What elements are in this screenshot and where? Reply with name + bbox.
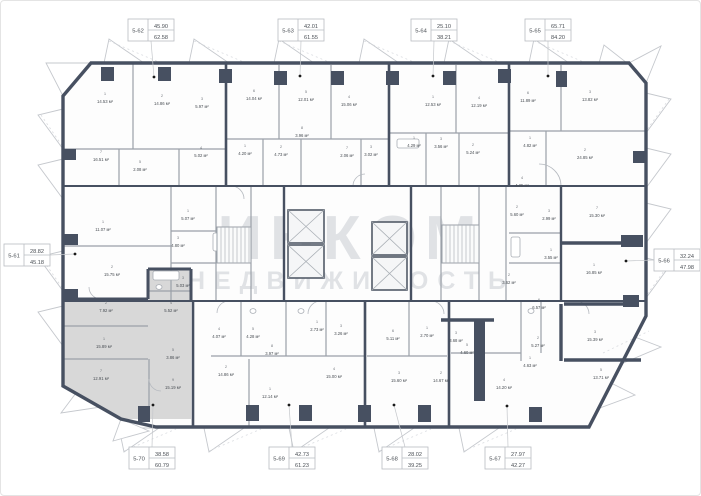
apartment-tag-5-68[interactable]: 5-6828.0239.25 [382, 447, 428, 469]
svg-text:84.20: 84.20 [551, 35, 565, 41]
svg-text:1: 1 [316, 320, 318, 324]
svg-text:3.02 м²: 3.02 м² [364, 152, 378, 157]
svg-text:2: 2 [472, 143, 474, 147]
svg-text:2: 2 [280, 145, 282, 149]
svg-text:3: 3 [548, 209, 550, 213]
apartment-tag-5-70[interactable]: 5-7038.5860.79 [129, 447, 175, 469]
svg-text:14.53 м²: 14.53 м² [97, 99, 114, 104]
svg-text:2.08 м²: 2.08 м² [133, 167, 147, 172]
svg-text:7: 7 [346, 146, 348, 150]
svg-text:4: 4 [170, 301, 172, 305]
svg-text:5.11 м²: 5.11 м² [386, 336, 400, 341]
svg-text:5.24 м²: 5.24 м² [466, 150, 480, 155]
svg-text:5-70: 5-70 [133, 457, 145, 463]
svg-text:1: 1 [529, 356, 531, 360]
svg-text:62.58: 62.58 [154, 35, 168, 41]
svg-text:7.92 м²: 7.92 м² [99, 308, 113, 313]
svg-text:5: 5 [252, 327, 254, 331]
svg-text:32.24: 32.24 [680, 254, 694, 260]
svg-text:11.07 м²: 11.07 м² [95, 227, 111, 232]
apartment-tag-5-66[interactable]: 5-6632.2447.98 [654, 249, 700, 271]
svg-text:6: 6 [527, 91, 529, 95]
svg-text:4: 4 [200, 146, 202, 150]
svg-text:12.14 м²: 12.14 м² [262, 394, 279, 399]
svg-text:1: 1 [426, 326, 428, 330]
svg-text:3.86 м²: 3.86 м² [166, 355, 180, 360]
svg-text:2.99 м²: 2.99 м² [542, 216, 556, 221]
svg-text:14.67 м²: 14.67 м² [433, 378, 450, 383]
svg-text:4: 4 [503, 378, 505, 382]
svg-text:42.73: 42.73 [295, 452, 309, 458]
svg-text:3: 3 [340, 324, 342, 328]
svg-text:8: 8 [301, 126, 303, 130]
svg-text:5: 5 [305, 90, 307, 94]
svg-text:4: 4 [478, 96, 480, 100]
svg-text:1: 1 [104, 92, 106, 96]
svg-text:6: 6 [253, 89, 255, 93]
svg-text:61.23: 61.23 [295, 463, 309, 469]
stairwell-left [217, 227, 251, 263]
svg-text:3: 3 [398, 371, 400, 375]
svg-text:3.55 м²: 3.55 м² [544, 255, 558, 260]
svg-text:12.53 м²: 12.53 м² [425, 102, 442, 107]
svg-text:4.28 м²: 4.28 м² [246, 334, 260, 339]
svg-text:13.71 м²: 13.71 м² [593, 375, 610, 380]
svg-text:16.85 м²: 16.85 м² [586, 270, 603, 275]
svg-text:16.51 м²: 16.51 м² [93, 157, 110, 162]
svg-text:5-64: 5-64 [415, 29, 427, 35]
svg-text:1: 1 [102, 220, 104, 224]
svg-text:2: 2 [516, 205, 518, 209]
svg-text:5: 5 [139, 160, 141, 164]
svg-text:3: 3 [594, 330, 596, 334]
svg-text:15.06 м²: 15.06 м² [341, 102, 358, 107]
svg-text:2: 2 [225, 365, 227, 369]
svg-text:13.82 м²: 13.82 м² [582, 97, 599, 102]
svg-text:3: 3 [201, 97, 203, 101]
svg-text:14.86 м²: 14.86 м² [154, 101, 171, 106]
svg-text:4.07 м²: 4.07 м² [212, 334, 226, 339]
svg-text:5: 5 [466, 343, 468, 347]
svg-text:2: 2 [537, 336, 539, 340]
svg-text:42.27: 42.27 [511, 463, 525, 469]
svg-text:4.25 м²: 4.25 м² [515, 183, 529, 188]
svg-text:42.01: 42.01 [304, 24, 318, 30]
svg-text:2: 2 [161, 94, 163, 98]
svg-text:5: 5 [600, 368, 602, 372]
svg-text:4.63 м²: 4.63 м² [523, 363, 537, 368]
svg-text:1: 1 [593, 263, 595, 267]
svg-text:5-68: 5-68 [386, 457, 398, 463]
apartment-tag-5-62[interactable]: 5-6245.9062.58 [128, 19, 174, 41]
svg-text:5-65: 5-65 [529, 29, 541, 35]
svg-text:5.07 м²: 5.07 м² [181, 216, 195, 221]
svg-text:5.03 м²: 5.03 м² [176, 283, 190, 288]
svg-text:27.97: 27.97 [511, 452, 525, 458]
svg-text:6.57 м²: 6.57 м² [532, 305, 546, 310]
svg-text:38.58: 38.58 [155, 452, 169, 458]
svg-text:45.90: 45.90 [154, 24, 168, 30]
svg-text:65.71: 65.71 [551, 24, 565, 30]
svg-text:4.29 м²: 4.29 м² [407, 143, 421, 148]
svg-text:3.62 м²: 3.62 м² [502, 280, 516, 285]
svg-text:7: 7 [100, 369, 102, 373]
svg-text:1: 1 [432, 95, 434, 99]
svg-text:6: 6 [392, 329, 394, 333]
svg-text:1: 1 [244, 144, 246, 148]
svg-text:5-67: 5-67 [489, 457, 501, 463]
svg-text:14.04 м²: 14.04 м² [246, 96, 263, 101]
svg-text:15.00 м²: 15.00 м² [326, 374, 343, 379]
svg-text:3: 3 [182, 276, 184, 280]
svg-text:4: 4 [348, 95, 350, 99]
svg-text:12.01 м²: 12.01 м² [298, 97, 315, 102]
svg-text:15.60 м²: 15.60 м² [391, 378, 408, 383]
svg-text:4: 4 [218, 327, 220, 331]
svg-text:2: 2 [111, 265, 113, 269]
svg-text:38.21: 38.21 [437, 35, 451, 41]
svg-text:15.30 м²: 15.30 м² [589, 213, 606, 218]
svg-text:3: 3 [589, 90, 591, 94]
svg-text:5.27 м²: 5.27 м² [531, 343, 545, 348]
svg-text:3.56 м²: 3.56 м² [434, 144, 448, 149]
svg-text:9: 9 [172, 378, 174, 382]
svg-text:3.97 м²: 3.97 м² [265, 351, 279, 356]
svg-text:4.60 м²: 4.60 м² [460, 350, 474, 355]
svg-text:5-62: 5-62 [132, 29, 144, 35]
svg-text:5-66: 5-66 [658, 259, 670, 265]
svg-text:60.79: 60.79 [155, 463, 169, 469]
svg-text:1: 1 [103, 337, 105, 341]
svg-text:28.02: 28.02 [408, 452, 422, 458]
svg-text:5: 5 [172, 348, 174, 352]
svg-text:24.85 м²: 24.85 м² [577, 155, 594, 160]
floorplan-viewport: ИНКОМ НЕДВИЖИМОСТЬ [0, 0, 701, 496]
svg-text:3.68 м²: 3.68 м² [449, 338, 463, 343]
svg-text:5.02 м²: 5.02 м² [194, 153, 208, 158]
svg-text:2: 2 [440, 371, 442, 375]
svg-text:15.19 м²: 15.19 м² [165, 385, 182, 390]
svg-text:2: 2 [508, 273, 510, 277]
svg-text:4.73 м²: 4.73 м² [274, 152, 288, 157]
svg-text:6: 6 [538, 298, 540, 302]
svg-text:3: 3 [440, 137, 442, 141]
svg-text:2.06 м²: 2.06 м² [340, 153, 354, 158]
svg-text:1: 1 [413, 136, 415, 140]
svg-text:61.55: 61.55 [304, 35, 318, 41]
svg-text:3.96 м²: 3.96 м² [295, 133, 309, 138]
svg-text:11.89 м²: 11.89 м² [520, 98, 536, 103]
svg-text:4: 4 [333, 367, 335, 371]
svg-text:8: 8 [271, 344, 273, 348]
svg-text:5-69: 5-69 [273, 457, 285, 463]
svg-text:2: 2 [584, 148, 586, 152]
svg-text:3: 3 [455, 331, 457, 335]
svg-text:1: 1 [550, 248, 552, 252]
svg-text:12.91 м²: 12.91 м² [93, 376, 110, 381]
svg-text:2.73 м²: 2.73 м² [310, 327, 324, 332]
svg-text:2.70 м²: 2.70 м² [420, 333, 434, 338]
svg-text:12.19 м²: 12.19 м² [471, 103, 488, 108]
apartment-tag-5-67[interactable]: 5-6727.9742.27 [485, 447, 531, 469]
apartment-tag-5-63[interactable]: 5-6342.0161.55 [278, 19, 324, 41]
apartment-tag-5-64[interactable]: 5-6425.1038.21 [411, 19, 457, 41]
svg-text:45.18: 45.18 [30, 260, 44, 266]
watermark-subtitle: НЕДВИЖИМОСТЬ [187, 267, 515, 295]
svg-text:4: 4 [521, 176, 523, 180]
svg-text:7: 7 [596, 206, 598, 210]
svg-text:5-63: 5-63 [282, 29, 294, 35]
svg-text:5.60 м²: 5.60 м² [510, 212, 524, 217]
svg-text:14.20 м²: 14.20 м² [496, 385, 513, 390]
stairwell-right [442, 225, 479, 263]
svg-text:1: 1 [269, 387, 271, 391]
svg-text:7: 7 [100, 150, 102, 154]
svg-text:4.80 м²: 4.80 м² [171, 243, 185, 248]
svg-text:4.82 м²: 4.82 м² [523, 143, 537, 148]
svg-text:4.20 м²: 4.20 м² [238, 151, 252, 156]
apartment-tag-5-61[interactable]: 5-6128.8245.18 [4, 244, 50, 266]
svg-text:28.82: 28.82 [30, 249, 44, 255]
svg-text:5.97 м²: 5.97 м² [195, 104, 209, 109]
svg-text:3.26 м²: 3.26 м² [334, 331, 348, 336]
svg-text:14.86 м²: 14.86 м² [218, 372, 235, 377]
svg-text:2: 2 [105, 301, 107, 305]
svg-text:15.39 м²: 15.39 м² [587, 337, 604, 342]
svg-text:3: 3 [177, 236, 179, 240]
svg-text:39.25: 39.25 [408, 463, 422, 469]
floor-plan-svg: ИНКОМ НЕДВИЖИМОСТЬ [1, 1, 701, 496]
svg-text:25.10: 25.10 [437, 24, 451, 30]
svg-text:5.52 м²: 5.52 м² [164, 308, 178, 313]
svg-text:47.98: 47.98 [680, 265, 694, 271]
svg-text:5-61: 5-61 [8, 254, 20, 260]
svg-text:3: 3 [370, 145, 372, 149]
svg-text:1: 1 [187, 209, 189, 213]
svg-text:15.75 м²: 15.75 м² [104, 272, 121, 277]
apartment-tag-5-69[interactable]: 5-6942.7361.23 [269, 447, 315, 469]
svg-text:15.89 м²: 15.89 м² [96, 344, 113, 349]
svg-text:1: 1 [529, 136, 531, 140]
apartment-tag-5-65[interactable]: 5-6565.7184.20 [525, 19, 571, 41]
